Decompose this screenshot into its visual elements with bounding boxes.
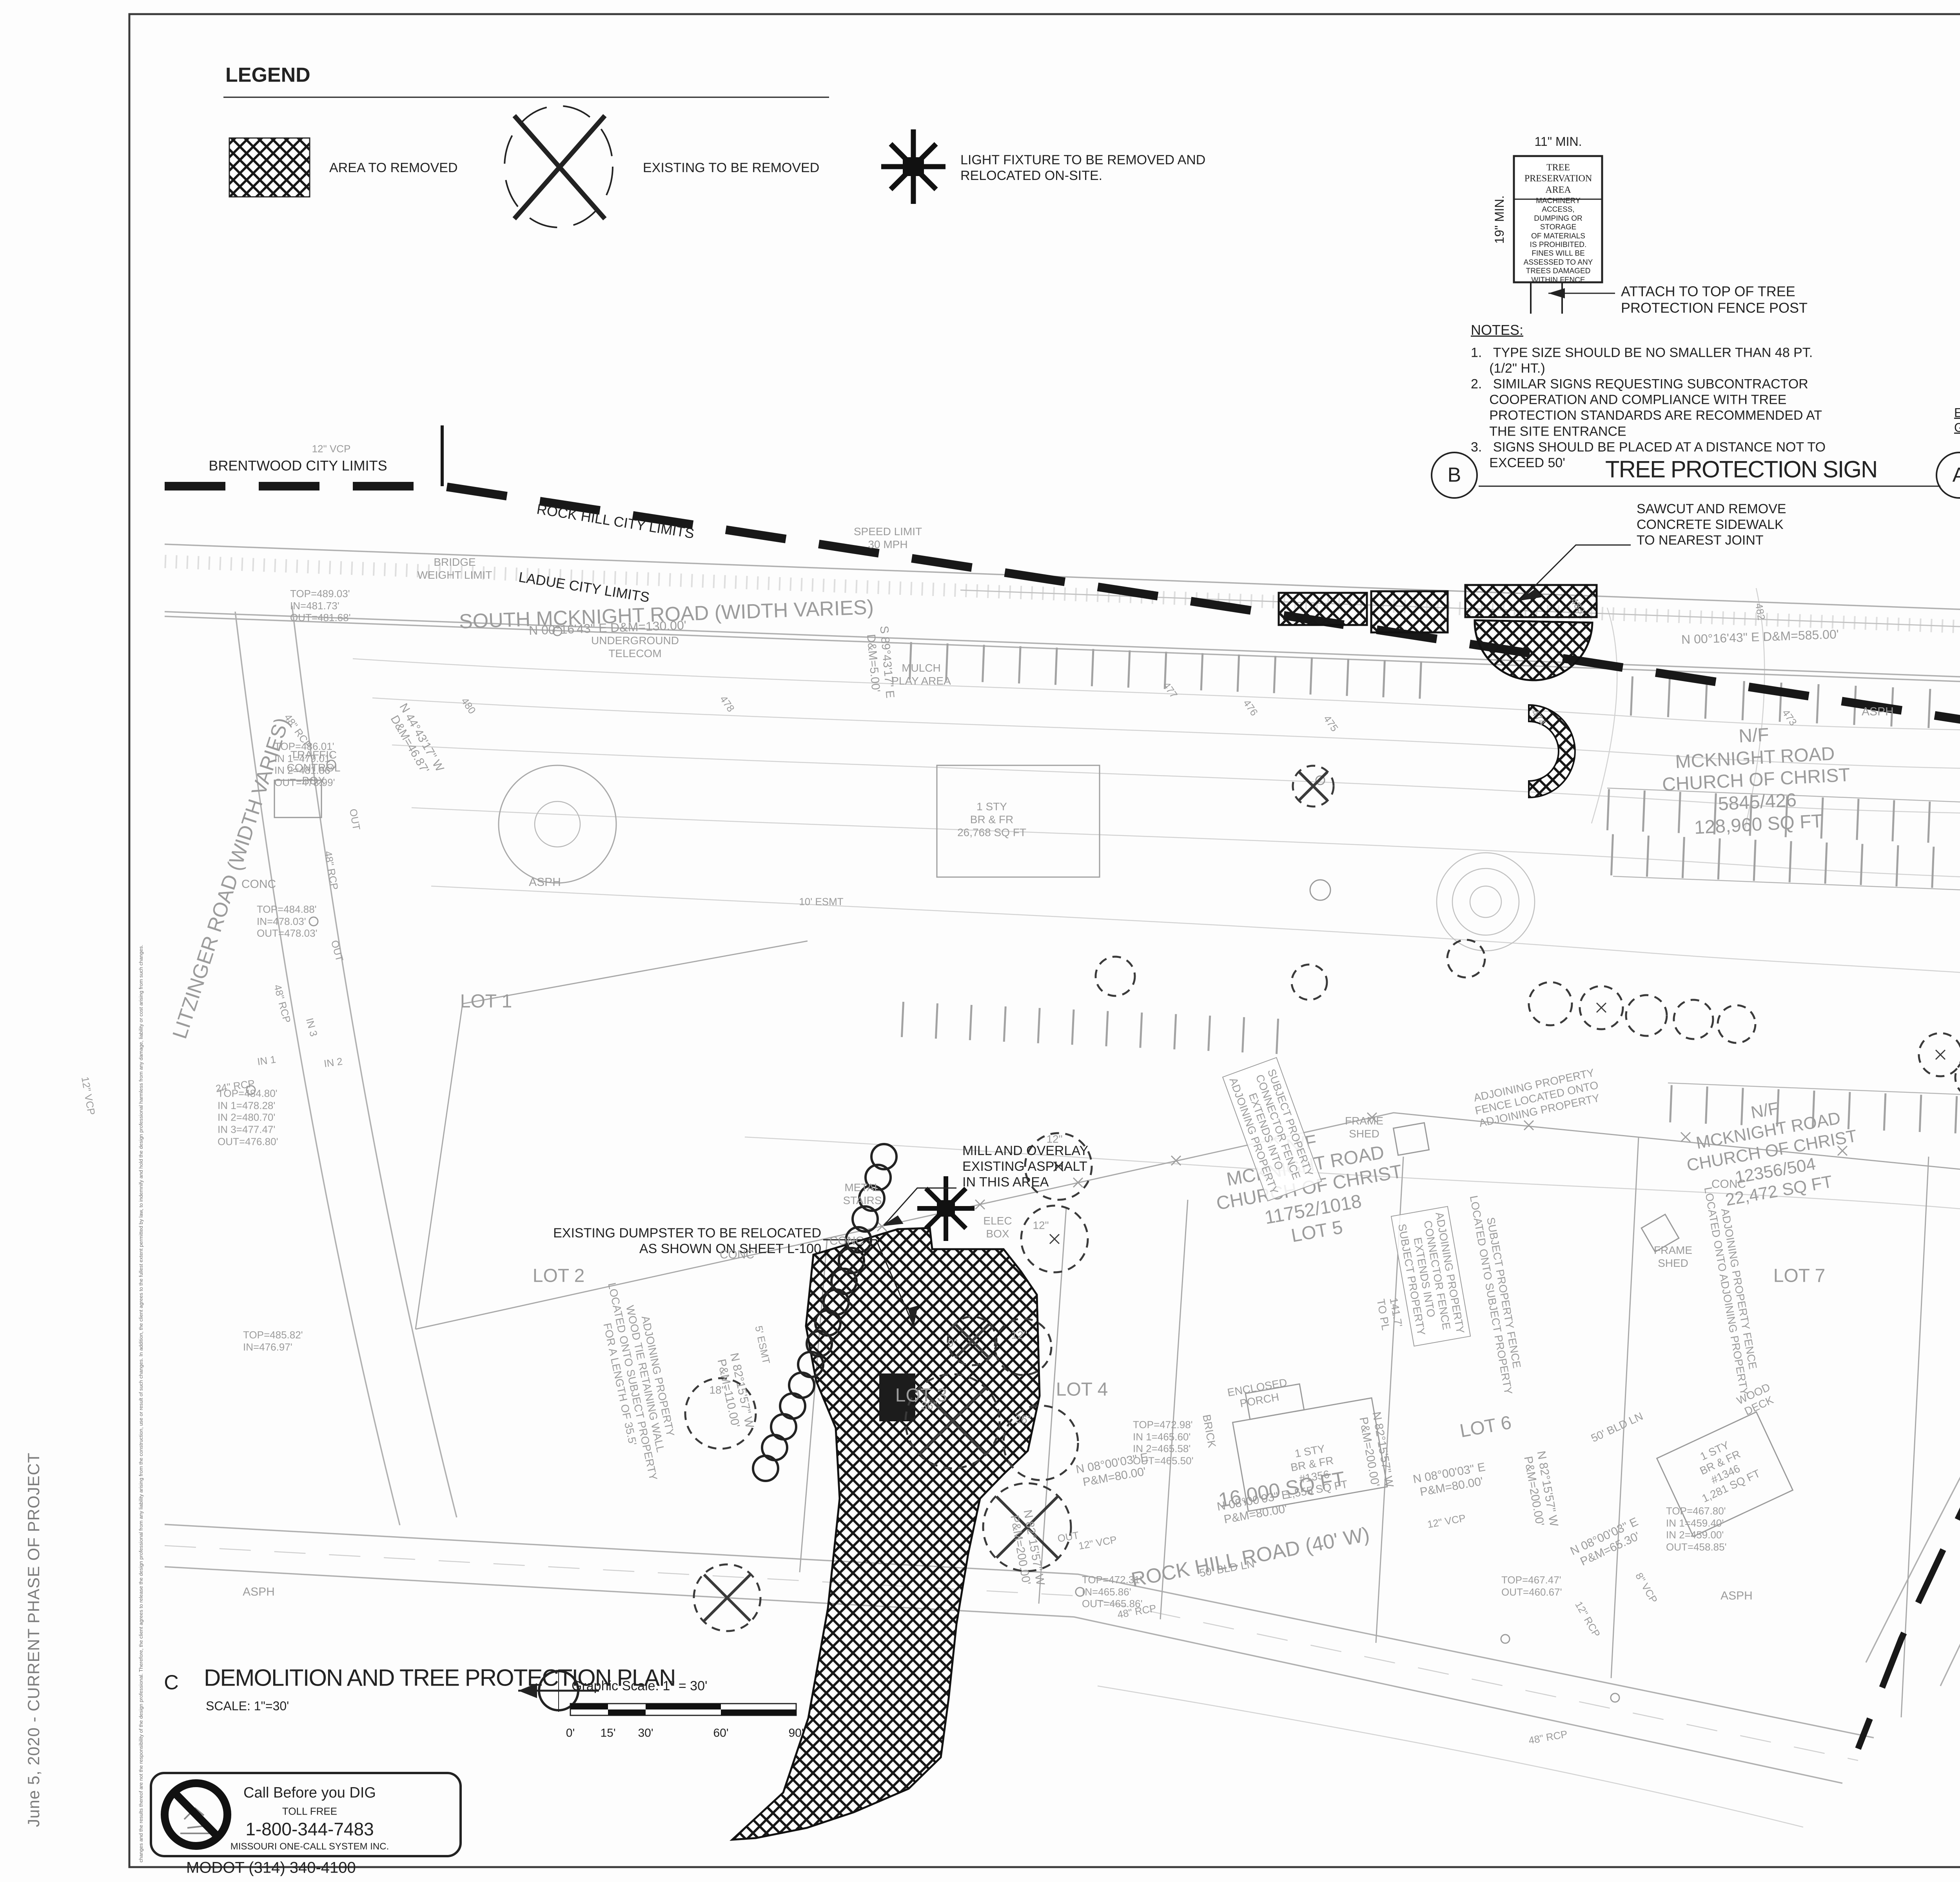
plan-label: 1. TYPE SIZE SHOULD BE NO SMALLER THAN 4… xyxy=(1471,345,1826,471)
plan-bubble: C xyxy=(164,1671,179,1695)
plan-label: TOP=467.47' OUT=460.67' xyxy=(1501,1574,1562,1598)
graphic-scale-label: Graphic Scale: 1" = 30' xyxy=(572,1678,707,1694)
plan-label: 11" MIN. xyxy=(1534,134,1582,149)
plan-label: MULCH PLAY AREA xyxy=(891,661,951,687)
plan-label: 26" xyxy=(1015,1413,1031,1426)
graphic-scale-bar xyxy=(570,1704,796,1715)
sawcut-note-left: SAWCUT AND REMOVE CONCRETE SIDEWALK TO N… xyxy=(1637,501,1786,548)
plan-label: 1 STY BR & FR 26,768 SQ FT xyxy=(957,800,1026,839)
plan-label: CONC xyxy=(829,1234,864,1248)
legend-existing-label: EXISTING TO BE REMOVED xyxy=(643,160,819,176)
hatch-swatch-icon xyxy=(229,138,310,197)
plan-label: ASPH xyxy=(529,875,561,889)
detail-b-bubble: B xyxy=(1448,463,1461,487)
plan-label: LOT 1 xyxy=(460,991,512,1013)
plan-linework xyxy=(0,0,1960,1882)
plan-label: 12" xyxy=(1046,1132,1062,1145)
plan-label: ASPH xyxy=(1720,1589,1753,1602)
plan-label: ELEC BOX xyxy=(983,1214,1012,1240)
plan-label: TOP=467.80' IN 1=459.40' IN 2=459.00' OU… xyxy=(1666,1505,1727,1553)
plan-label: LOT 2 xyxy=(533,1265,585,1288)
plan-label: SPEED LIMIT 30 MPH xyxy=(854,525,922,551)
plan-label: 30' xyxy=(638,1726,653,1740)
plan-label: TOP=485.82' IN=476.97' xyxy=(243,1329,303,1353)
plan-label: 19" MIN. xyxy=(1492,195,1507,243)
modot-note: MODOT (314) 340-4100 xyxy=(186,1858,356,1877)
plan-label: IN 2 xyxy=(323,1055,343,1070)
plan-label: 60' xyxy=(713,1726,728,1740)
plan-label: LOT 7 xyxy=(1773,1265,1826,1288)
plan-label: 12" xyxy=(1033,1219,1049,1232)
plan-label: MACHINERY ACCESS, DUMPING OR STORAGE OF … xyxy=(1524,197,1593,285)
plan-label: TOP=472.98' IN 1=465.60' IN 2=465.58' OU… xyxy=(1133,1419,1194,1467)
plan-label: IN 1 xyxy=(256,1053,276,1068)
plan-label: FRAME SHED xyxy=(1654,1244,1692,1270)
plan-label: CONC xyxy=(720,1248,754,1261)
date-phase-note: June 5, 2020 - CURRENT PHASE OF PROJECT xyxy=(24,1310,43,1827)
detail-b-title: TREE PROTECTION SIGN xyxy=(1605,456,1877,484)
plan-label: 9" xyxy=(947,1336,958,1349)
plan-label: ASPH xyxy=(243,1585,275,1599)
dig-phone: 1-800-344-7483 xyxy=(245,1818,374,1840)
plan-label: LOT 4 xyxy=(1056,1379,1108,1401)
plan-label: TOP=484.88' IN=478.03' OUT=478.03' xyxy=(257,903,318,939)
plan-label: METAL STAIRS xyxy=(843,1181,882,1207)
plan-label: 12" VCP xyxy=(312,443,351,455)
plan-scale: SCALE: 1"=30' xyxy=(206,1699,289,1714)
detail-a-bubble: A xyxy=(1953,463,1960,487)
plan-label: 141.7' TO PL xyxy=(1374,1296,1405,1332)
dig-tollfree: TOLL FREE xyxy=(282,1806,337,1818)
plan-label: TOP=484.80' IN 1=478.28' IN 2=480.70' IN… xyxy=(218,1087,278,1147)
plan-label: CONC xyxy=(241,877,276,891)
plan-label: NOTES: xyxy=(1471,322,1523,338)
plan-label: 0' xyxy=(566,1726,575,1740)
plan-label: EXISTING GRADE xyxy=(1954,405,1960,435)
drawing-sheet: LEGENDAREA TO REMOVEDEXISTING TO BE REMO… xyxy=(0,0,1960,1882)
dig-org: MISSOURI ONE-CALL SYSTEM INC. xyxy=(230,1841,389,1852)
legend-area-label: AREA TO REMOVED xyxy=(329,160,458,176)
plan-label: TOP=489.03' IN=481.73' OUT=481.68' xyxy=(290,588,351,624)
dumpster-note: EXISTING DUMPSTER TO BE RELOCATED AS SHO… xyxy=(553,1225,821,1257)
plan-label: TREE PRESERVATION AREA xyxy=(1524,162,1592,196)
mill-overlay-note: MILL AND OVERLAY EXISTING ASPHALT IN THI… xyxy=(962,1143,1088,1190)
plan-label: BRENTWOOD CITY LIMITS xyxy=(209,458,387,474)
plan-label: 36" xyxy=(921,1399,937,1412)
plan-label: 15' xyxy=(600,1726,615,1740)
plan-label: TOP=472.31' IN=465.86' OUT=465.86' xyxy=(1082,1574,1143,1610)
legend-light-label: LIGHT FIXTURE TO BE REMOVED AND RELOCATE… xyxy=(960,152,1205,183)
plan-label: 90' xyxy=(788,1726,804,1740)
plan-label: 10' ESMT xyxy=(799,896,843,908)
edge-fine-print: changes and the results thereof are not … xyxy=(138,35,144,1862)
plan-label: N/F MCKNIGHT ROAD CHURCH OF CHRIST 5845/… xyxy=(1659,720,1853,841)
plan-label: UNDERGROUND TELECOM xyxy=(591,634,679,660)
plan-label: FRAME SHED xyxy=(1345,1114,1383,1140)
legend-title: LEGEND xyxy=(225,63,310,87)
plan-label: 18" xyxy=(709,1383,725,1396)
no-dig-icon xyxy=(165,1783,227,1846)
plan-label: BRIDGE WEIGHT LIMIT xyxy=(417,556,492,581)
plan-label: 12" xyxy=(1011,1328,1027,1341)
plan-label: ASPH xyxy=(1862,705,1894,718)
dig-title: Call Before you DIG xyxy=(243,1784,376,1802)
plan-label: ATTACH TO TOP OF TREE PROTECTION FENCE P… xyxy=(1621,283,1808,317)
